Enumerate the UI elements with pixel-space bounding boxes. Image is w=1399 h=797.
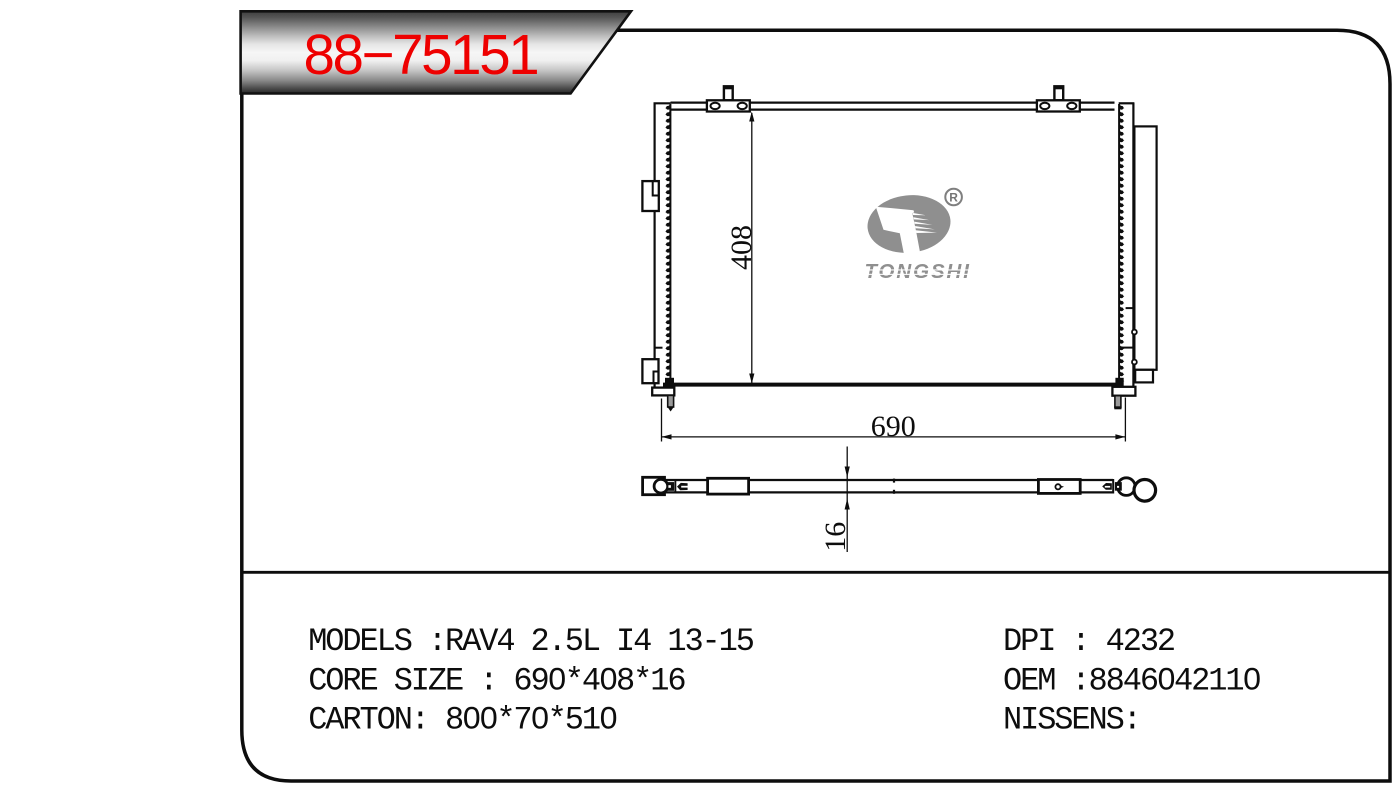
- svg-text:690: 690: [871, 410, 916, 443]
- svg-text:TONGSHI: TONGSHI: [865, 260, 971, 283]
- svg-text:16: 16: [819, 522, 852, 552]
- svg-text:DPI : 4232: DPI : 4232: [1003, 623, 1174, 660]
- svg-text:NISSENS:: NISSENS:: [1003, 702, 1140, 739]
- svg-text:CARTON: 800*70*510: CARTON: 800*70*510: [308, 702, 617, 739]
- svg-text:OEM :8846042110: OEM :8846042110: [1003, 662, 1260, 699]
- svg-text:408: 408: [725, 225, 758, 270]
- svg-text:R: R: [949, 190, 958, 204]
- svg-text:CORE SIZE : 690*408*16: CORE SIZE : 690*408*16: [308, 662, 685, 699]
- svg-text:MODELS :RAV4 2.5L I4 13-15: MODELS :RAV4 2.5L I4 13-15: [308, 623, 754, 660]
- svg-text:88−75151: 88−75151: [304, 23, 538, 86]
